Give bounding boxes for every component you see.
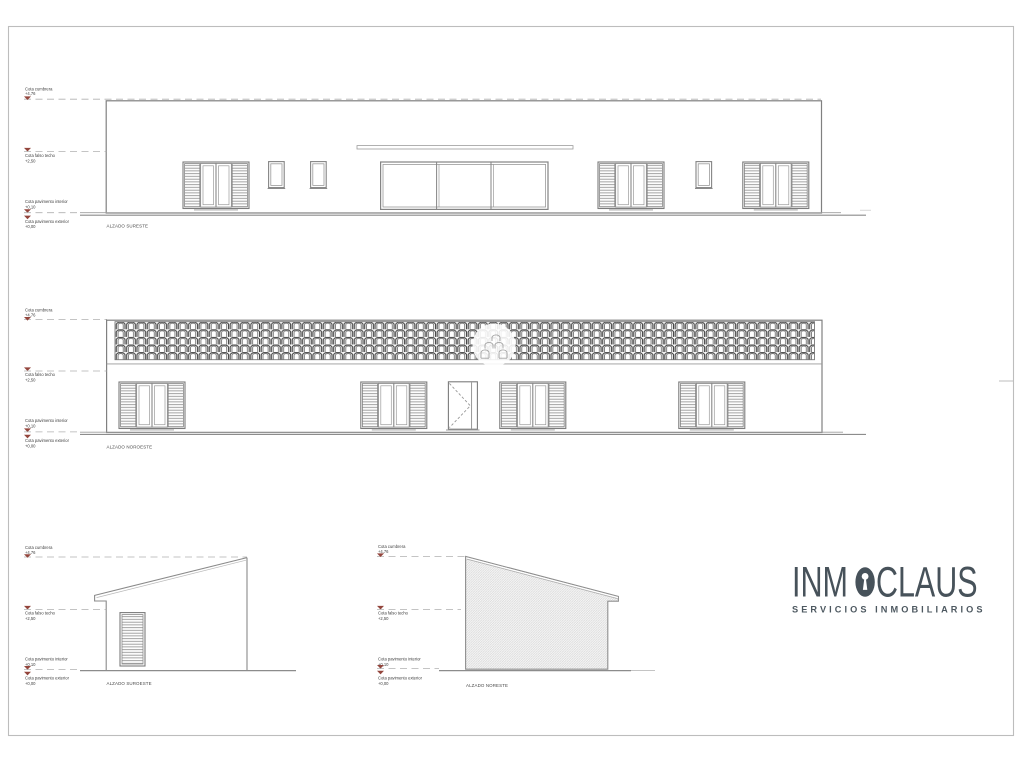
svg-text:ALZADO SURESTE: ALZADO SURESTE bbox=[107, 224, 149, 229]
svg-text:+2,50: +2,50 bbox=[25, 616, 36, 621]
svg-text:Cota pavimento interior: Cota pavimento interior bbox=[378, 656, 421, 661]
svg-text:+0,00: +0,00 bbox=[25, 224, 36, 229]
svg-text:ALZADO NOROESTE: ALZADO NOROESTE bbox=[107, 445, 153, 450]
svg-text:Cota pavimento interior: Cota pavimento interior bbox=[25, 199, 68, 204]
svg-text:Cota pavimento exterior: Cota pavimento exterior bbox=[378, 676, 423, 681]
svg-text:Cota pavimento exterior: Cota pavimento exterior bbox=[25, 438, 70, 443]
svg-text:+0,00: +0,00 bbox=[25, 443, 36, 448]
svg-text:CLAUS: CLAUS bbox=[876, 560, 978, 607]
svg-text:+4,76: +4,76 bbox=[25, 91, 36, 96]
svg-text:+2,50: +2,50 bbox=[25, 158, 36, 163]
svg-text:+2,50: +2,50 bbox=[25, 378, 36, 383]
svg-text:+4,76: +4,76 bbox=[25, 550, 36, 555]
svg-text:Cota falso techo: Cota falso techo bbox=[25, 611, 56, 616]
svg-text:SERVICIOS INMOBILIARIOS: SERVICIOS INMOBILIARIOS bbox=[792, 604, 983, 614]
svg-text:Cota falso techo: Cota falso techo bbox=[25, 372, 56, 377]
svg-text:ALZADO SUROESTE: ALZADO SUROESTE bbox=[107, 681, 152, 686]
svg-text:+0,00: +0,00 bbox=[378, 681, 389, 686]
svg-text:+4,76: +4,76 bbox=[25, 312, 36, 317]
svg-text:Cota pavimento interior: Cota pavimento interior bbox=[25, 418, 68, 423]
svg-text:Cota pavimento exterior: Cota pavimento exterior bbox=[25, 219, 70, 224]
svg-text:+2,50: +2,50 bbox=[378, 616, 389, 621]
svg-text:ALZADO NORESTE: ALZADO NORESTE bbox=[466, 683, 508, 688]
svg-text:+0,00: +0,00 bbox=[25, 681, 36, 686]
svg-text:+0,10: +0,10 bbox=[25, 204, 36, 209]
svg-text:Cota falso techo: Cota falso techo bbox=[378, 611, 409, 616]
svg-text:Cota falso techo: Cota falso techo bbox=[25, 153, 56, 158]
svg-text:INM: INM bbox=[792, 560, 848, 607]
svg-text:+0,10: +0,10 bbox=[25, 424, 36, 429]
svg-text:Cota pavimento exterior: Cota pavimento exterior bbox=[25, 676, 70, 681]
svg-text:Cota pavimento interior: Cota pavimento interior bbox=[25, 656, 68, 661]
